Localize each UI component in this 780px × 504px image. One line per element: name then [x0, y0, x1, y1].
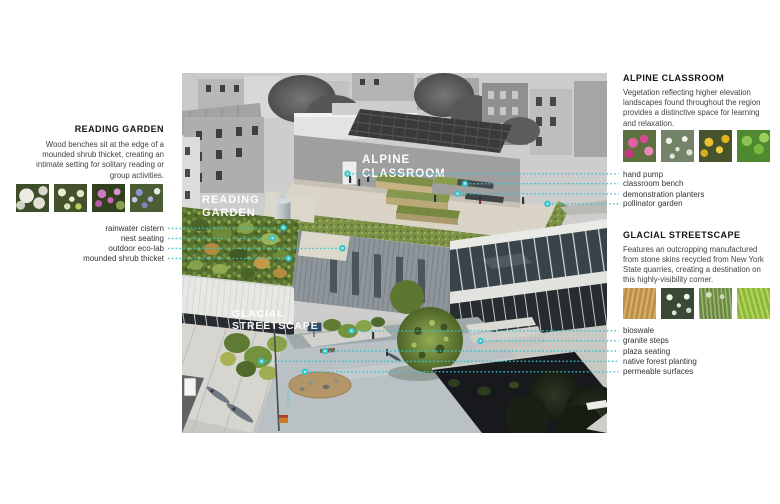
aerial-photo: ALPINE CLASSROOM READING GARDEN GLACIAL …: [182, 73, 607, 433]
callout-permeable-surfaces: permeable surfaces: [623, 367, 775, 376]
reading-garden-label: READING: [202, 194, 260, 206]
svg-text:CLASSROOM: CLASSROOM: [362, 168, 446, 180]
glacial-streetscape-label: GLACIAL: [232, 308, 284, 320]
glacial-streetscape-thumbnails: [623, 288, 770, 319]
glacial-streetscape-heading: GLACIAL STREETSCAPE: [623, 231, 740, 240]
reading-garden-heading: READING GARDEN: [10, 125, 164, 134]
callout-demonstration-planters: demonstration planters: [623, 190, 775, 199]
plant-photo-thumbnail: [92, 184, 125, 212]
svg-text:GARDEN: GARDEN: [202, 207, 256, 219]
plant-photo-thumbnail: [699, 130, 732, 162]
callout-outdoor-eco-lab: outdoor eco-lab: [10, 244, 164, 253]
plant-photo-thumbnail: [661, 288, 694, 319]
plant-photo-thumbnail: [16, 184, 49, 212]
annotated-site-diagram: ALPINE CLASSROOM READING GARDEN GLACIAL …: [0, 0, 780, 504]
callout-granite-steps: granite steps: [623, 336, 775, 345]
callout-plaza-seating: plaza seating: [623, 347, 775, 356]
callout-native-forest-planting: native forest planting: [623, 357, 775, 366]
glacial-streetscape-description: Features an outcropping manufactured fro…: [623, 245, 775, 286]
callout-hand-pump: hand pump: [623, 170, 775, 179]
plant-photo-thumbnail: [737, 288, 770, 319]
street-tree-small: [390, 280, 424, 314]
reading-garden-thumbnails: [16, 184, 163, 212]
plant-photo-thumbnail: [623, 288, 656, 319]
callout-bioswale: bioswale: [623, 326, 775, 335]
callout-classroom-bench: classroom bench: [623, 179, 775, 188]
svg-text:STREETSCAPE: STREETSCAPE: [232, 320, 318, 332]
callout-nest-seating: nest seating: [10, 234, 164, 243]
callout-pollinator-garden: pollinator garden: [623, 199, 775, 208]
plant-photo-thumbnail: [699, 288, 732, 319]
street-tree-large: [397, 307, 463, 373]
stone-outcrop: [289, 372, 351, 398]
callout-mounded-shrub-thicket: mounded shrub thicket: [10, 254, 164, 263]
plant-photo-thumbnail: [623, 130, 656, 162]
alpine-classroom-thumbnails: [623, 130, 770, 162]
alpine-classroom-label: ALPINE: [362, 154, 410, 166]
plant-photo-thumbnail: [661, 130, 694, 162]
alpine-classroom-heading: ALPINE CLASSROOM: [623, 74, 724, 83]
alpine-classroom-description: Vegetation reflecting higher elevation l…: [623, 88, 775, 129]
plant-photo-thumbnail: [737, 130, 770, 162]
callout-rainwater-cistern: rainwater cistern: [10, 224, 164, 233]
plant-photo-thumbnail: [130, 184, 163, 212]
reading-garden-description: Wood benches sit at the edge of a mounde…: [10, 140, 164, 181]
plant-photo-thumbnail: [54, 184, 87, 212]
